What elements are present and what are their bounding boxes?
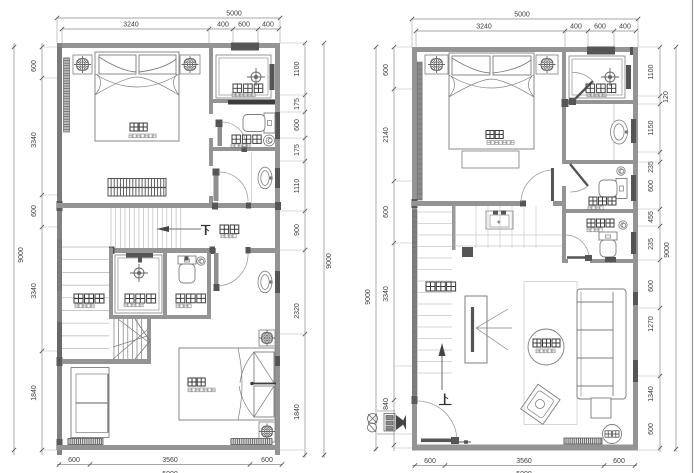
svg-text:400: 400 [262,22,274,29]
svg-text:3240: 3240 [476,24,492,31]
svg-text:400: 400 [619,24,631,31]
svg-text:600: 600 [648,423,655,435]
svg-text:175: 175 [294,144,301,156]
svg-text:600: 600 [261,457,273,464]
svg-text:9000: 9000 [326,253,333,269]
svg-text:9000: 9000 [664,242,671,258]
svg-text:900: 900 [294,224,301,236]
svg-text:600: 600 [594,24,606,31]
svg-text:3240: 3240 [123,22,139,29]
svg-text:1110: 1110 [294,179,301,194]
svg-text:2320: 2320 [294,303,301,319]
svg-text:600: 600 [648,280,655,292]
svg-text:600: 600 [31,60,38,72]
svg-text:1150: 1150 [648,120,655,135]
svg-text:5000: 5000 [514,12,530,19]
svg-text:175: 175 [294,98,301,110]
svg-text:1840: 1840 [31,385,38,401]
svg-text:3340: 3340 [31,132,38,148]
svg-text:1840: 1840 [294,404,301,420]
svg-text:600: 600 [648,180,655,192]
svg-text:9000: 9000 [365,289,372,305]
svg-text:600: 600 [238,22,250,29]
svg-text:1100: 1100 [294,61,301,76]
svg-text:3560: 3560 [162,457,178,464]
svg-text:600: 600 [383,64,390,76]
svg-text:1100: 1100 [648,64,655,79]
svg-text:3340: 3340 [383,286,390,302]
svg-text:3560: 3560 [516,458,532,465]
svg-text:600: 600 [68,457,80,464]
svg-text:2140: 2140 [383,127,390,143]
svg-text:600: 600 [613,458,625,465]
svg-text:600: 600 [294,119,301,131]
svg-text:600: 600 [31,205,38,217]
svg-text:455: 455 [648,211,655,223]
svg-text:235: 235 [648,161,655,173]
svg-text:600: 600 [383,206,390,218]
svg-text:9000: 9000 [18,247,25,263]
svg-text:1340: 1340 [648,386,655,402]
svg-text:235: 235 [648,238,655,250]
svg-text:400: 400 [217,22,229,29]
svg-text:840: 840 [383,398,390,410]
svg-text:5000: 5000 [226,11,242,18]
svg-text:120: 120 [663,91,670,103]
svg-text:3340: 3340 [31,283,38,299]
svg-text:400: 400 [570,24,582,31]
svg-text:1270: 1270 [648,316,655,332]
svg-text:600: 600 [424,458,436,465]
